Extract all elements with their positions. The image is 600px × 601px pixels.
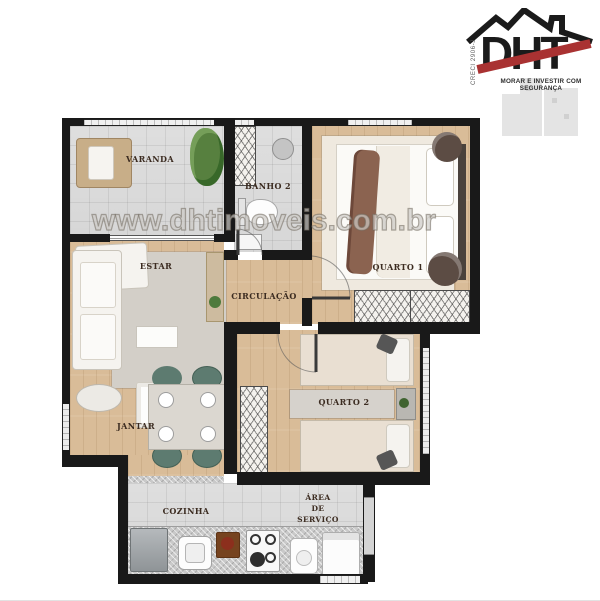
fridge [130, 528, 168, 572]
quarto2-right-window [422, 348, 430, 454]
label-area-l2: DE [288, 503, 348, 514]
burner-2 [265, 534, 276, 545]
quarto1-top-window [348, 119, 412, 126]
wall-left-lower [118, 462, 128, 583]
dht-logo: CRECI 2906-J DHT MORAR E INVESTIR COM SE… [452, 8, 596, 100]
burner-3 [250, 552, 265, 567]
washing-machine [322, 532, 360, 576]
label-quarto1: QUARTO 1 [348, 263, 448, 272]
wall-banho-right-lower [302, 298, 312, 326]
plate-1 [158, 392, 174, 408]
burner-1 [250, 534, 261, 545]
bathroom-sink [272, 138, 294, 160]
floorplan-image: VARANDA BANHO 2 QUARTO 1 ESTAR CIRCULAÇÃ… [0, 0, 600, 601]
wall-banho-bottom-a [224, 250, 238, 260]
plate-2 [200, 392, 216, 408]
quarto1-wardrobe [354, 290, 470, 324]
label-circulacao: CIRCULAÇÃO [214, 292, 314, 301]
logo-tagline: MORAR E INVESTIR COM SEGURANÇA [480, 78, 600, 92]
label-area-l1: ÁREA [288, 492, 348, 503]
servico-door-gap [364, 497, 374, 555]
wall-banho-bottom-b [262, 250, 312, 260]
jantar-left-window [62, 404, 70, 452]
wall-divider-jantar-quarto2 [224, 330, 237, 474]
estar-ottoman [76, 384, 122, 412]
servico-bottom-window [320, 575, 360, 584]
quarto1-round-rug-top [432, 132, 462, 162]
kitchen-sink-basin [185, 543, 205, 563]
wall-mid-horizontal-right [318, 322, 480, 334]
shower-door [234, 126, 256, 186]
wall-quarto2-bottom [237, 472, 430, 485]
label-estar: ESTAR [106, 262, 206, 271]
building-window-3 [564, 114, 569, 119]
creci-number: CRECI 2906-J [471, 25, 477, 85]
wall-left-upper [62, 118, 70, 404]
label-varanda: VARANDA [100, 155, 200, 164]
jantar-sideboard [136, 326, 178, 348]
nightstand-plant [399, 398, 409, 408]
burner-4 [265, 552, 276, 563]
label-area-servico: ÁREA DE SERVIÇO [288, 492, 348, 525]
label-jantar: JANTAR [86, 422, 186, 431]
quarto1-wardrobe-divider [410, 290, 411, 322]
label-area-l3: SERVIÇO [288, 514, 348, 525]
label-cozinha: COZINHA [136, 507, 236, 516]
plate-4 [200, 426, 216, 442]
banho-top-window [234, 119, 254, 126]
cutting-board-food [221, 537, 234, 550]
quarto2-wardrobe [240, 386, 268, 476]
tv-sideboard [206, 252, 224, 322]
label-quarto2: QUARTO 2 [294, 398, 394, 407]
label-banho2: BANHO 2 [218, 182, 318, 191]
website-watermark: www.dhtimoveis.com.br [92, 204, 488, 238]
sofa-cushion-2 [80, 314, 116, 360]
varanda-top-window [84, 119, 214, 126]
laundry-tank-basin [296, 550, 312, 566]
